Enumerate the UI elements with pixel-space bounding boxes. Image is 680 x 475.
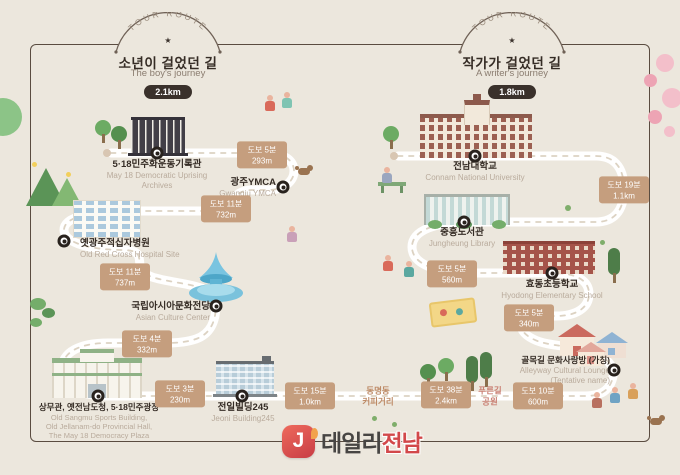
waypoint-coffee-street: 동명동 커피거리 bbox=[362, 385, 393, 406]
boys-route-start-dot bbox=[103, 149, 111, 157]
stop-name-ko: 5·18민주화운동기록관 bbox=[87, 159, 227, 170]
person-illustration bbox=[610, 387, 620, 404]
stop-name-ko: 중흥도서관 bbox=[402, 227, 522, 238]
waypoint-greenway-park: 푸른길 공원 bbox=[478, 385, 501, 406]
person-illustration bbox=[282, 92, 292, 109]
stop-name-ko: 골목길 문화사랑방 (가칭) bbox=[486, 355, 610, 365]
person-with-stroller-illustration bbox=[287, 226, 297, 243]
tour-route-infographic: TOUR ROUTE ★ 소년이 걸었던 길 The boy's journey… bbox=[0, 0, 680, 475]
stop-school: 효동초등학교 Hyodong Elementary School bbox=[488, 279, 616, 301]
daily-jeonnam-logo: J 데일리전남 bbox=[282, 424, 422, 458]
stop-name-ko: 국립아시아문화전당 bbox=[104, 301, 210, 312]
map-marker-icon-acc bbox=[210, 300, 223, 313]
child-on-scooter-illustration bbox=[404, 261, 414, 278]
stop-name-ko: 전남대학교 bbox=[405, 161, 545, 172]
leg-badge: 도보 10분600m bbox=[513, 382, 563, 409]
stop-library: 중흥도서관 Jungheung Library bbox=[402, 227, 522, 249]
leg-badge: 도보 19분1.1km bbox=[599, 176, 649, 203]
logo-leaf-accent bbox=[311, 428, 318, 439]
tree-icon bbox=[438, 358, 454, 381]
tour-route-arc-left: TOUR ROUTE bbox=[108, 12, 228, 54]
person-illustration bbox=[628, 383, 638, 400]
stop-name-en: Jeoni Building245 bbox=[197, 414, 289, 424]
stop-redcross: 옛광주적십자병원 Old Red Cross Hospital Site bbox=[80, 238, 204, 260]
stop-name-ko: 전일빌딩245 bbox=[197, 402, 289, 413]
stop-name-ko: 옛광주적십자병원 bbox=[80, 238, 204, 249]
tree-icon bbox=[383, 126, 399, 149]
leg-badge: 도보 5분293m bbox=[237, 141, 287, 168]
map-marker-icon-library bbox=[458, 216, 471, 229]
leg-badge: 도보 4분332m bbox=[122, 330, 172, 357]
route-distance-badge: 2.1km bbox=[144, 85, 192, 99]
map-marker-icon-school bbox=[546, 267, 559, 280]
stop-name-en: Old Red Cross Hospital Site bbox=[80, 250, 204, 260]
writers-route-start-dot bbox=[390, 152, 398, 160]
red-cross-hospital-building-icon bbox=[73, 200, 141, 238]
tour-route-arc-right: TOUR ROUTE bbox=[452, 12, 572, 54]
leg-badge: 도보 15분1.0km bbox=[285, 382, 335, 409]
route-distance-badge: 1.8km bbox=[488, 85, 536, 99]
stop-acc: 국립아시아문화전당 Asian Culture Center bbox=[104, 301, 210, 323]
stop-name-en: Asian Culture Center bbox=[104, 313, 210, 323]
tree-icon bbox=[95, 120, 111, 143]
map-marker-icon-sangmu bbox=[92, 390, 105, 403]
leg-badge: 도보 38분2.4km bbox=[421, 381, 471, 408]
stop-jeonil: 전일빌딩245 Jeoni Building245 bbox=[197, 402, 289, 424]
logo-initial: J bbox=[293, 429, 305, 453]
stop-name-ko: 광주YMCA bbox=[188, 177, 276, 188]
tree-icon bbox=[111, 126, 127, 149]
star-icon: ★ bbox=[508, 36, 515, 45]
star-icon: ★ bbox=[164, 36, 171, 45]
leg-badge: 도보 11분732m bbox=[201, 195, 251, 222]
leg-badge: 도보 5분340m bbox=[504, 304, 554, 331]
route-distance-writers-wrap: 1.8km bbox=[432, 82, 592, 100]
map-marker-icon-jeonil bbox=[236, 390, 249, 403]
stop-name-ko: 상무관, 옛전남도청, 5·18민주광장 bbox=[28, 402, 170, 412]
stop-name-en: Jungheung Library bbox=[402, 239, 522, 249]
stop-name-ko: 효동초등학교 bbox=[488, 279, 616, 290]
stop-name-en: Connam National University bbox=[405, 173, 545, 183]
map-marker-icon-ymca bbox=[277, 181, 290, 194]
blossom-branch-icon bbox=[634, 48, 680, 143]
map-marker-icon-archives bbox=[151, 147, 164, 160]
stop-sangmu: 상무관, 옛전남도청, 5·18민주광장 Old Sangmu Sports B… bbox=[28, 402, 170, 440]
stop-name-en: Old Sangmu Sports Building, Old Jellanam… bbox=[28, 413, 170, 440]
stop-lounge: 골목길 문화사랑방 (가칭) Alleyway Cultural Lounge … bbox=[486, 355, 610, 385]
stop-cnu: 전남대학교 Connam National University bbox=[405, 161, 545, 183]
dog-illustration bbox=[298, 168, 310, 175]
map-marker-icon-cnu bbox=[469, 150, 482, 163]
daily-jeonnam-logo-icon: J bbox=[282, 425, 315, 458]
child-on-scooter-illustration bbox=[383, 255, 393, 272]
stop-name-en: Hyodong Elementary School bbox=[488, 291, 616, 301]
map-marker-icon-redcross bbox=[58, 235, 71, 248]
person-illustration bbox=[592, 392, 602, 409]
daily-jeonnam-logo-text: 데일리전남 bbox=[321, 424, 422, 458]
person-illustration bbox=[265, 95, 275, 112]
route-subtitle-writers: A writer's journey bbox=[432, 68, 592, 79]
leg-badge: 도보 5분560m bbox=[427, 260, 477, 287]
route-subtitle-boys: The boy's journey bbox=[88, 68, 248, 79]
leg-badge: 도보 11분737m bbox=[100, 263, 150, 290]
route-distance-boys-wrap: 2.1km bbox=[88, 82, 248, 100]
map-marker-icon-lounge bbox=[608, 364, 621, 377]
leg-badge: 도보 3분230m bbox=[155, 380, 205, 407]
person-reading-illustration bbox=[382, 167, 392, 184]
dog-illustration bbox=[650, 418, 662, 425]
